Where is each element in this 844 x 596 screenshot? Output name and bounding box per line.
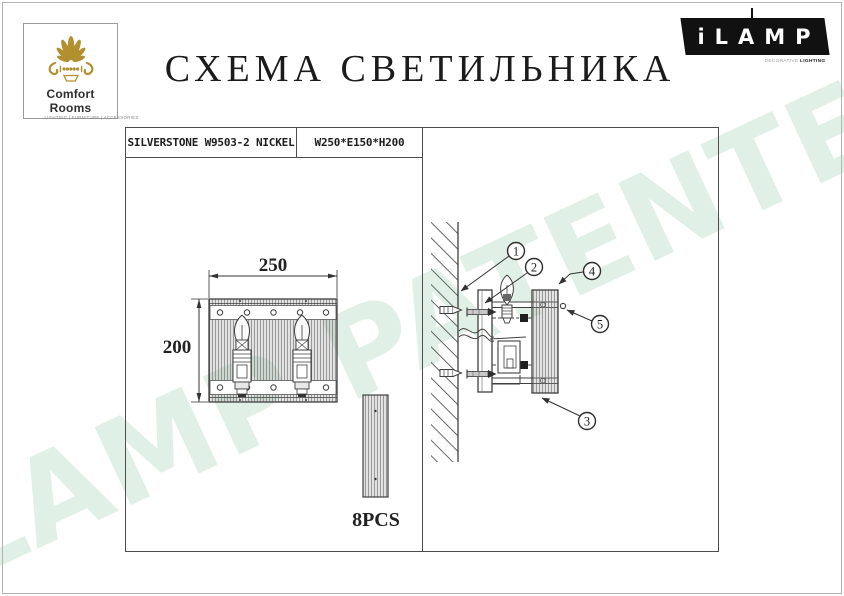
spec-sheet: iLAMP PATENTED [0,0,844,596]
page-border [2,2,842,594]
